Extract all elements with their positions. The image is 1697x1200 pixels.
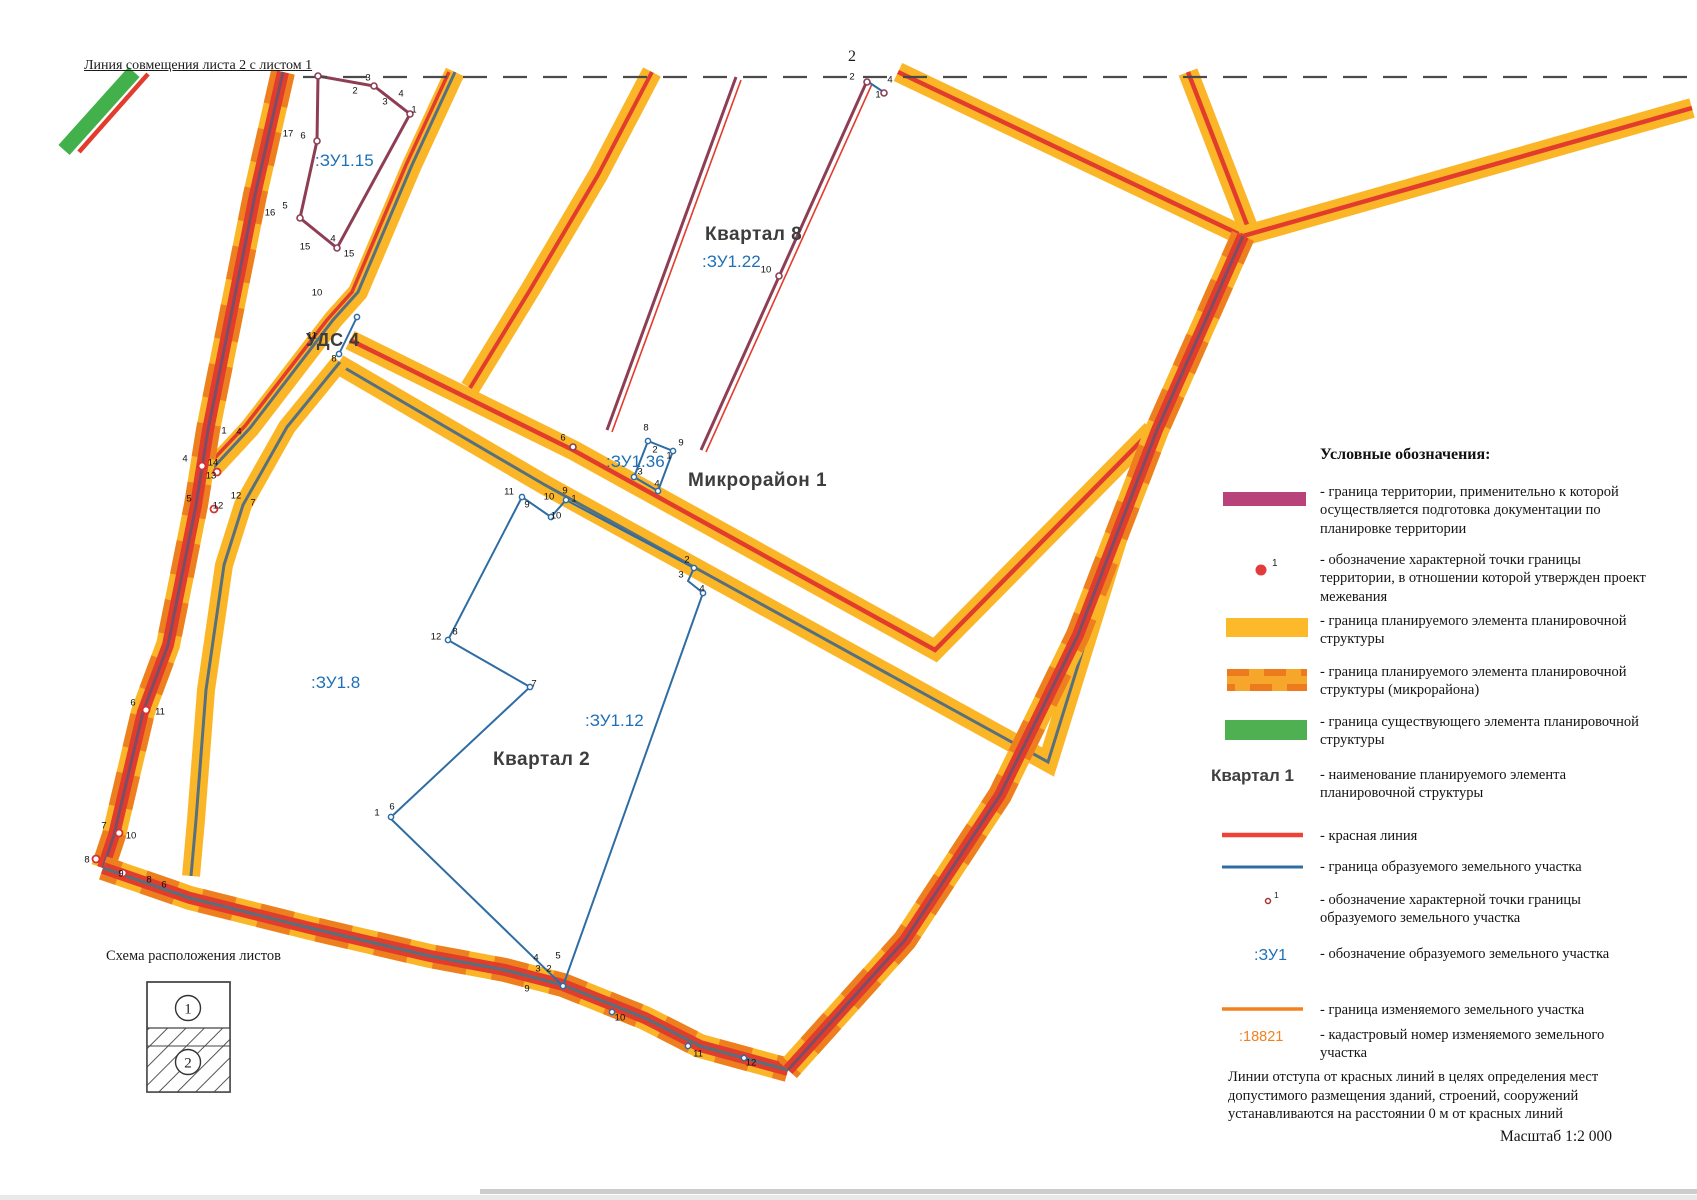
point-number-label: 9 — [678, 438, 683, 449]
point-number-label: 9 — [562, 486, 567, 497]
point-number-label: 5 — [186, 494, 191, 505]
point-number-label: 14 — [208, 458, 219, 469]
territory-characteristic-point — [143, 707, 150, 714]
legend-zu-sample: :ЗУ1 — [1254, 947, 1287, 965]
legend-entry-text: - обозначение характерной точки границы … — [1320, 551, 1652, 606]
sheet2-number: 2 — [184, 1056, 192, 1072]
point-number-label: 8 — [146, 875, 151, 886]
sheet-page: 1 2 Линия совмещения листа 2 с листом 1 … — [0, 0, 1697, 1200]
legend-entry-text: - граница планируемого элемента планиров… — [1320, 663, 1652, 700]
point-number-label: 2 — [352, 86, 357, 97]
point-number-label: 13 — [206, 471, 217, 482]
point-number-label: 8 — [643, 423, 648, 434]
territory-boundary-point — [334, 245, 340, 251]
point-number-label: 15 — [344, 249, 355, 260]
point-number-label: 4 — [182, 454, 187, 465]
point-number-label: 3 — [365, 73, 370, 84]
point-number-label: 11 — [693, 1049, 703, 1060]
point-number-label: 6 — [130, 698, 135, 709]
territory-boundary-point — [371, 83, 377, 89]
point-number-label: 6 — [161, 880, 166, 891]
point-number-label: 15 — [300, 242, 311, 253]
point-number-label: 7 — [250, 498, 255, 509]
legend-territory-point — [1256, 565, 1267, 576]
point-number-label: 9 — [524, 984, 529, 995]
point-number-label: 2 — [849, 72, 854, 83]
legend-entry-text: - кадастровый номер изменяемого земельно… — [1320, 1026, 1652, 1063]
legend-entry-text: - граница планируемого элемента планиров… — [1320, 612, 1652, 649]
parcel-boundary-point — [685, 1043, 690, 1048]
planned-street-bands — [191, 72, 1692, 876]
point-number-label: 12 — [213, 501, 224, 512]
point-number-label: 3 — [382, 97, 387, 108]
point-number-label: 2 — [684, 555, 689, 566]
parcel-zu112-boundary — [390, 497, 703, 986]
point-number-label: 12 — [746, 1058, 757, 1069]
point-number-label: 1 — [666, 451, 671, 462]
territory-characteristic-point — [116, 830, 123, 837]
legend-title: Условные обозначения: — [1320, 446, 1491, 464]
point-number-label: 4 — [654, 479, 659, 490]
point-number-label: 6 — [300, 131, 305, 142]
parcel-designation-label: :ЗУ1.22 — [702, 252, 761, 272]
legend-parcel-point — [1266, 899, 1271, 904]
territory-boundary-point — [297, 215, 303, 221]
point-number-label: 4 — [533, 953, 538, 964]
point-number-label: 4 — [236, 427, 241, 438]
point-number-label: 6 — [389, 802, 394, 813]
legend-entry-text: - наименование планируемого элемента пла… — [1320, 766, 1652, 803]
territory-boundary-point — [315, 73, 321, 79]
sheet-layout-schema: 1 2 — [147, 982, 230, 1092]
parcel-boundary-point — [631, 474, 636, 479]
point-number-label: 4 — [398, 89, 403, 100]
point-number-label: 4 — [699, 584, 704, 595]
sheet-alignment-note: Линия совмещения листа 2 с листом 1 — [84, 58, 312, 74]
scale-label: Масштаб 1:2 000 — [1400, 1128, 1612, 1146]
scan-artifacts — [0, 1189, 1697, 1200]
point-number-label: 1 — [411, 105, 416, 116]
parcel-boundary-point — [691, 565, 696, 570]
point-number-label: 7 — [101, 821, 106, 832]
point-number-label: 11 — [307, 331, 317, 342]
point-number-label: 2 — [546, 964, 551, 975]
legend-planned-element-bar — [1226, 618, 1308, 637]
legend-microdistrict-bar — [1227, 669, 1307, 691]
point-number-label: 10 — [544, 492, 555, 503]
legend-cadastre-sample: :18821 — [1239, 1029, 1283, 1045]
parcel-boundary-point — [445, 637, 450, 642]
planning-element-name-label: Квартал 2 — [493, 749, 590, 771]
point-number-label: 1 — [374, 808, 379, 819]
territory-characteristic-point — [93, 856, 100, 863]
territory-boundary-point — [864, 79, 870, 85]
legend-territory-point-label: 1 — [1272, 558, 1278, 569]
legend-entry-text: - обозначение образуемого земельного уча… — [1320, 945, 1652, 963]
point-number-label: 7 — [531, 679, 536, 690]
planning-element-name-label: Микрорайон 1 — [688, 470, 827, 492]
point-number-label: 2 — [652, 445, 657, 456]
parcel-boundary-point — [560, 983, 565, 988]
legend-entry-text: - обозначение характерной точки границы … — [1320, 891, 1652, 928]
point-number-label: 1 — [221, 426, 226, 437]
planning-element-name-label: Квартал 8 — [705, 224, 802, 246]
point-number-label: 3 — [678, 570, 683, 581]
point-number-label: 4 — [887, 75, 892, 86]
point-number-label: 3 — [637, 467, 642, 478]
point-number-label: 6 — [560, 433, 565, 444]
page-number: 2 — [848, 48, 856, 66]
point-number-label: 10 — [551, 511, 562, 522]
legend-entry-text: - граница изменяемого земельного участка — [1320, 1001, 1652, 1019]
legend-entry-text: - граница образуемого земельного участка — [1320, 858, 1652, 876]
parcel-boundary-point — [354, 314, 359, 319]
point-number-label: 8 — [84, 855, 89, 866]
schema-title: Схема расположения листов — [106, 948, 281, 965]
point-number-label: 9 — [524, 500, 529, 511]
legend-entry-text: - красная линия — [1320, 827, 1652, 845]
point-number-label: 9 — [118, 869, 123, 880]
parcel-boundary-point — [336, 351, 341, 356]
legend-entry-text: - граница существующего элемента планиро… — [1320, 713, 1652, 750]
point-number-label: 8 — [452, 627, 457, 638]
sheet1-number: 1 — [184, 1002, 192, 1018]
point-number-label: 5 — [282, 201, 287, 212]
territory-boundary-point — [314, 138, 320, 144]
parcel-boundary-point — [388, 814, 393, 819]
point-number-label: 10 — [126, 831, 137, 842]
existing-element-boundary-green — [64, 72, 148, 152]
legend-entry-text: - граница территории, применительно к ко… — [1320, 483, 1652, 538]
parcel-boundary-point — [563, 497, 568, 502]
point-number-label: 11 — [504, 487, 514, 498]
territory-boundary-point — [570, 444, 576, 450]
point-number-label: 12 — [231, 491, 242, 502]
territory-boundary-point — [881, 90, 887, 96]
parcel-designation-label: :ЗУ1.8 — [311, 673, 360, 693]
parcel-designation-label: :ЗУ1.15 — [315, 151, 374, 171]
point-number-label: 4 — [330, 234, 335, 245]
point-number-label: 10 — [312, 288, 323, 299]
territory-boundary-point — [776, 273, 782, 279]
point-number-label: 5 — [555, 951, 560, 962]
point-number-label: 10 — [615, 1013, 626, 1024]
parcel-boundary-point — [645, 438, 650, 443]
point-number-label: 1 — [571, 494, 576, 505]
legend-swatches — [1222, 492, 1308, 1009]
point-number-label: 8 — [331, 354, 336, 365]
point-number-label: 11 — [155, 707, 165, 718]
point-number-label: 10 — [761, 265, 772, 276]
setback-note: Линии отступа от красных линий в целях о… — [1228, 1068, 1660, 1124]
point-number-label: 1 — [875, 90, 880, 101]
point-number-label: 16 — [265, 208, 276, 219]
point-number-label: 17 — [283, 129, 294, 140]
legend-territory-bar — [1223, 492, 1306, 506]
point-number-label: 3 — [535, 964, 540, 975]
legend-kvartal-sample: Квартал 1 — [1211, 766, 1294, 786]
parcel-designation-label: :ЗУ1.12 — [585, 711, 644, 731]
territory-characteristic-point — [199, 463, 206, 470]
point-number-label: 12 — [431, 632, 442, 643]
legend-parcel-point-label: 1 — [1274, 890, 1279, 900]
legend-existing-element-bar — [1225, 720, 1307, 740]
